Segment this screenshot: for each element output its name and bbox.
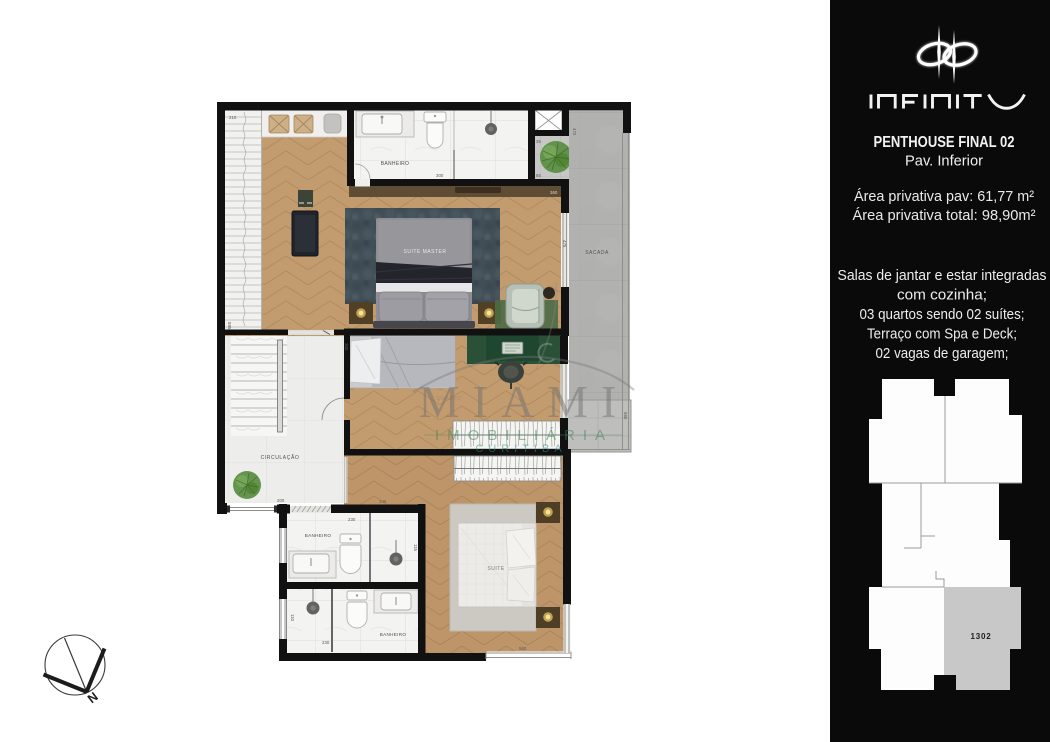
svg-text:230: 230 xyxy=(322,640,330,645)
svg-text:140: 140 xyxy=(379,499,387,504)
svg-text:230: 230 xyxy=(348,517,356,522)
svg-text:CIRCULAÇÃO: CIRCULAÇÃO xyxy=(261,454,300,461)
svg-text:300: 300 xyxy=(344,343,349,351)
svg-text:360: 360 xyxy=(550,190,558,195)
svg-text:SACADA: SACADA xyxy=(585,250,609,256)
svg-text:CURITIBA: CURITIBA xyxy=(475,443,566,455)
svg-text:110: 110 xyxy=(290,614,295,622)
svg-text:02 vagas de garagem;: 02 vagas de garagem; xyxy=(876,345,1009,362)
svg-text:SUITE MASTER: SUITE MASTER xyxy=(404,249,447,255)
svg-text:1302: 1302 xyxy=(971,632,992,641)
svg-text:Área privativa pav: 61,77 m²: Área privativa pav: 61,77 m² xyxy=(854,188,1034,205)
svg-text:BANHEIRO: BANHEIRO xyxy=(305,533,332,538)
svg-text:com cozinha;: com cozinha; xyxy=(897,287,987,304)
svg-text:210: 210 xyxy=(229,115,237,120)
svg-text:BANHEIRO: BANHEIRO xyxy=(380,632,407,637)
svg-text:PENTHOUSE FINAL 02: PENTHOUSE FINAL 02 xyxy=(874,134,1015,151)
svg-text:472: 472 xyxy=(572,128,577,136)
svg-text:MIAMI: MIAMI xyxy=(419,376,630,427)
svg-text:Área privativa total: 98,90m²: Área privativa total: 98,90m² xyxy=(853,207,1036,224)
svg-text:300: 300 xyxy=(436,173,444,178)
svg-text:85: 85 xyxy=(536,173,541,178)
svg-text:595: 595 xyxy=(227,322,232,330)
svg-text:IMOBILIÁRIA: IMOBILIÁRIA xyxy=(435,427,613,444)
svg-text:562: 562 xyxy=(519,646,527,651)
svg-text:475: 475 xyxy=(562,240,567,248)
svg-text:SUITE: SUITE xyxy=(487,566,504,572)
svg-text:200: 200 xyxy=(277,498,285,503)
svg-text:Terraço com Spa e Deck;: Terraço com Spa e Deck; xyxy=(867,326,1017,343)
svg-text:03 quartos sendo 02 suítes;: 03 quartos sendo 02 suítes; xyxy=(860,306,1025,323)
svg-text:Pav. Inferior: Pav. Inferior xyxy=(905,153,983,170)
svg-text:35: 35 xyxy=(536,139,541,144)
svg-text:Salas de jantar e estar integr: Salas de jantar e estar integradas xyxy=(838,267,1047,284)
svg-text:115: 115 xyxy=(413,544,418,552)
svg-text:BANHEIRO: BANHEIRO xyxy=(381,161,410,167)
